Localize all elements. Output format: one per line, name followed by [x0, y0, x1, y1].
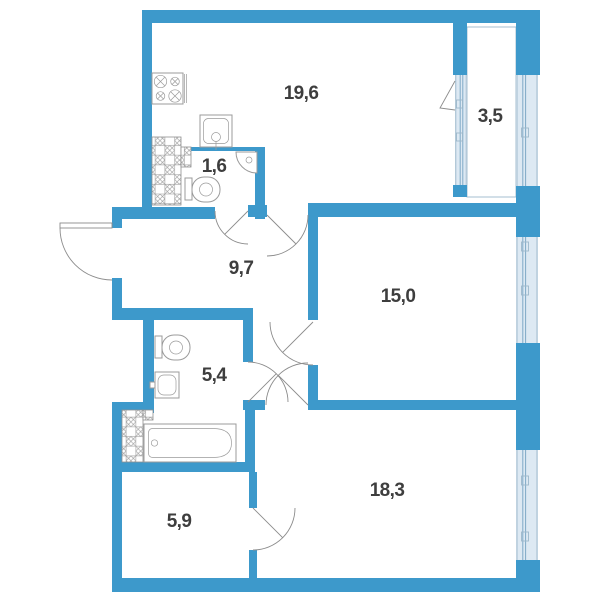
wall-kitchen-bedroom-divider — [308, 203, 516, 217]
corner-sink-icon — [236, 152, 257, 173]
wall-kitchen-west — [142, 10, 152, 219]
stove-icon — [152, 73, 187, 104]
wall-bathroom-east — [243, 320, 253, 362]
vent-shafts — [122, 137, 191, 462]
kitchen-sink-icon — [200, 115, 232, 150]
washbasin-icon — [150, 372, 179, 398]
wall-bathroom-storage-divider — [122, 462, 255, 472]
wall-storage-east-upper — [249, 472, 257, 508]
wall-bottom — [112, 578, 540, 592]
wall-right-pier-2 — [516, 343, 540, 450]
wall-top — [142, 10, 540, 23]
room-label-wc: 1,6 — [202, 156, 227, 177]
wall-hallway-south — [112, 308, 253, 320]
wall-left-entrance-bottom — [112, 278, 122, 320]
living-room-door — [266, 363, 308, 405]
bathroom-door — [248, 362, 288, 402]
wc-door — [215, 211, 248, 244]
room-label-hallway: 9,7 — [229, 258, 254, 279]
storage-door — [253, 508, 295, 550]
balcony-door-swing — [440, 81, 455, 110]
bedroom-door — [270, 322, 313, 365]
floor-plan: 19,6 3,5 1,6 9,7 15,0 5,4 18,3 5,9 — [0, 0, 601, 601]
kitchen-door — [267, 215, 308, 256]
window-bedroom — [516, 237, 538, 343]
room-label-storage: 5,9 — [167, 511, 192, 532]
wall-kitchen-east-block — [453, 22, 467, 75]
toilet-icon — [155, 335, 190, 360]
wall-right-pier-1 — [516, 186, 540, 237]
bathtub-icon — [144, 424, 236, 462]
room-label-bathroom: 5,4 — [202, 365, 228, 386]
room-label-living-room: 18,3 — [370, 480, 405, 501]
wall-bedroom-living-divider — [308, 400, 516, 410]
balcony-door-window — [455, 75, 467, 185]
window-living-room — [516, 450, 538, 560]
room-label-kitchen-living: 19,6 — [284, 83, 319, 104]
wall-left-lower — [112, 402, 122, 592]
room-label-balcony: 3,5 — [478, 106, 504, 127]
room-label-bedroom: 15,0 — [381, 286, 416, 307]
toilet-icon — [185, 177, 220, 202]
wall-top-right-corner — [516, 10, 540, 75]
wall-wc-north — [191, 147, 255, 151]
wall-wc-south — [112, 207, 215, 219]
wall-balcony-bottom-block — [453, 185, 467, 197]
wall-bedroom-west-lower — [308, 365, 318, 403]
wall-bathroom-west — [143, 308, 154, 413]
wall-storage-east-lower — [249, 550, 257, 578]
entrance-door — [60, 223, 112, 280]
floor-plan-page: 19,6 3,5 1,6 9,7 15,0 5,4 18,3 5,9 — [0, 0, 601, 601]
wall-living-west — [245, 400, 255, 472]
wall-bedroom-west-upper — [308, 217, 318, 320]
window-balcony-outer — [516, 75, 538, 186]
